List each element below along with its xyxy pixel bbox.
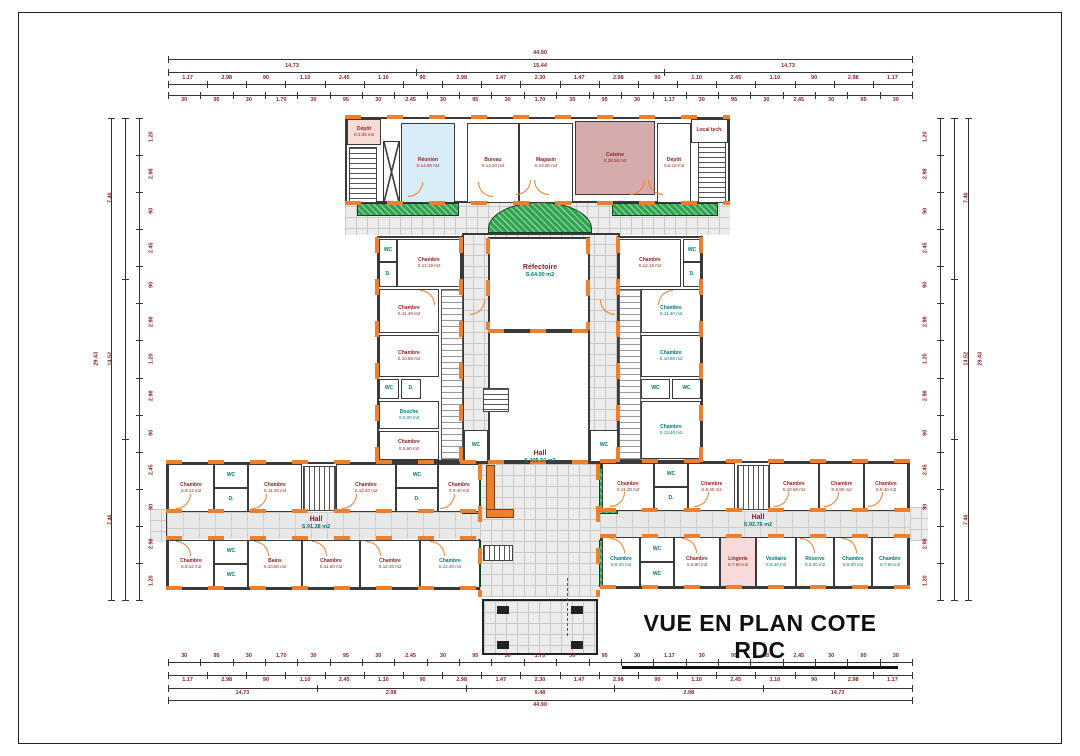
room-label: ChambreS.9.12 m2 xyxy=(180,483,202,494)
dimension-value: 1.10 xyxy=(285,76,324,82)
dimension-value: 1.20 xyxy=(149,349,155,369)
dimension-value: 1.20 xyxy=(923,571,929,591)
room-label: D. xyxy=(690,272,695,278)
dimension-value: 2.98 xyxy=(923,386,929,406)
dimension-value: 1.10 xyxy=(677,678,716,684)
dimension-value: 90 xyxy=(923,497,929,517)
dimension-tick xyxy=(416,69,417,76)
room-label: ChambreS.9.40 m2 xyxy=(875,482,897,493)
wall-accent xyxy=(166,536,480,540)
dimension-tick xyxy=(937,452,944,453)
room-label: ChambreS.10.80 m2 xyxy=(397,351,420,362)
dimension-value: 95 xyxy=(718,98,750,104)
room-label: WC xyxy=(653,572,661,578)
dimension-tick xyxy=(937,489,944,490)
wall-accent xyxy=(459,237,463,462)
dimension-value: 2.98 xyxy=(599,76,638,82)
dimension-value: 1.20 xyxy=(149,571,155,591)
dimension-value: 2.98 xyxy=(149,386,155,406)
dimension-value: 2.45 xyxy=(149,460,155,480)
dimension-tick xyxy=(937,378,944,379)
porch-post xyxy=(571,641,583,649)
dimension-value: 90 xyxy=(149,200,155,220)
room-label: MagasinS.13.60 m2 xyxy=(534,158,557,169)
room-wc: WC xyxy=(214,464,248,488)
dimension-value: 2.98 xyxy=(923,312,929,332)
dimension-tick xyxy=(912,672,913,679)
dimension-value: 14.73 xyxy=(168,691,317,697)
room-chambre: ChambreS.10.80 m2 xyxy=(379,335,439,377)
dimension-tick xyxy=(394,659,395,666)
dimension-value: 30 xyxy=(556,98,588,104)
dimension-tick xyxy=(364,81,365,88)
dimension-tick xyxy=(481,81,482,88)
area-label-r-fectoire: RéfectoireS.64.00 m2 xyxy=(523,264,557,279)
room-label: ChambreS.9.60 m2 xyxy=(398,440,420,451)
room-wc: WC xyxy=(379,239,397,262)
room-label: DoucheS.5.20 m2 xyxy=(399,410,420,421)
dimension-value: 95 xyxy=(330,654,362,660)
dimension-value: 30 xyxy=(168,98,200,104)
room-chambre: ChambreS.11.60 m2 xyxy=(302,540,360,588)
dimension-value: 2.30 xyxy=(520,678,559,684)
dimension-line xyxy=(168,688,912,689)
dimension-tick xyxy=(912,697,913,704)
dimension-tick xyxy=(136,192,143,193)
wall-accent xyxy=(600,585,910,589)
room-wc: WC xyxy=(590,430,618,462)
room-chambre: ChambreS.9.80 m2 xyxy=(674,537,720,587)
area-label-hall: HallS.92.76 m2 xyxy=(744,514,772,529)
dimension-value: 2.98 xyxy=(207,678,246,684)
dimension-value: 95 xyxy=(330,98,362,104)
room-label: ChambreS.12.40 m2 xyxy=(438,559,461,570)
room-label: D. xyxy=(669,496,674,502)
dimension-tick xyxy=(168,56,169,63)
dimension-value: 2.30 xyxy=(520,76,559,82)
room-label: ChambreS.11.20 m2 xyxy=(264,483,287,494)
dimension-line xyxy=(954,118,955,600)
dimension-value: 1.20 xyxy=(923,349,929,369)
room-label: D. xyxy=(386,272,391,278)
room-wc: WC xyxy=(654,463,688,487)
dimension-tick xyxy=(136,563,143,564)
dimension-value: 2.45 xyxy=(923,460,929,480)
room-label: ChambreS.10.60 m2 xyxy=(782,482,805,493)
dimension-tick xyxy=(136,303,143,304)
dimension-value: 1.10 xyxy=(755,678,794,684)
dimension-value: 2.98 xyxy=(599,678,638,684)
room-label: WC xyxy=(682,386,690,392)
room-label: VestiaireS.8.40 m2 xyxy=(766,557,787,568)
dimension-tick xyxy=(912,685,913,692)
area-label-hall: HallS.91.38 m2 xyxy=(302,516,330,531)
dimension-value: 7.46 xyxy=(108,188,114,208)
room-label: ChambreS.9.40 m2 xyxy=(701,482,723,493)
dimension-value: 90 xyxy=(795,76,834,82)
entrance-wall xyxy=(486,509,514,518)
room-chambre: ChambreS.12.19 m2 xyxy=(397,239,461,287)
room-chambre: ChambreS.10.80 m2 xyxy=(641,335,701,377)
dimension-line xyxy=(139,118,140,600)
room-wc: WC xyxy=(396,464,438,488)
dimension-tick xyxy=(524,659,525,666)
dimension-value: 30 xyxy=(750,98,782,104)
room-label: WC xyxy=(227,573,235,579)
dimension-tick xyxy=(136,340,143,341)
wall-accent xyxy=(600,459,910,463)
dimension-tick xyxy=(122,118,129,119)
room-label: WC xyxy=(688,248,696,254)
dimension-tick xyxy=(330,659,331,666)
dimension-value: 2.45 xyxy=(325,678,364,684)
dimension-tick xyxy=(136,266,143,267)
dimension-value: 14.73 xyxy=(664,64,912,70)
room-label: WC xyxy=(227,549,235,555)
dimension-value: 29.43 xyxy=(978,349,984,369)
wall-accent xyxy=(166,586,480,590)
dimension-tick xyxy=(459,659,460,666)
dimension-tick xyxy=(136,155,143,156)
dimension-line xyxy=(168,59,912,60)
room-label: ChambreS.11.40 m2 xyxy=(398,306,421,317)
room-label: ChambreS.9.40 m2 xyxy=(448,483,470,494)
dimension-value: 30 xyxy=(233,98,265,104)
dimension-tick xyxy=(951,600,958,601)
dimension-tick xyxy=(912,69,913,76)
dimension-tick xyxy=(136,526,143,527)
dimension-value: 44.90 xyxy=(168,51,912,57)
dimension-value: 30 xyxy=(362,654,394,660)
room-label: LingerieS.7.60 m2 xyxy=(728,557,749,568)
dimension-tick xyxy=(265,659,266,666)
dimension-value: 7.46 xyxy=(964,509,970,529)
room-label: WC xyxy=(600,443,608,449)
room-lingerie: LingerieS.7.60 m2 xyxy=(720,537,756,587)
room-label: WC xyxy=(385,386,393,392)
dimension-value: 90 xyxy=(403,76,442,82)
dimension-tick xyxy=(297,659,298,666)
dimension-value: 95 xyxy=(200,98,232,104)
dimension-value: 14.73 xyxy=(763,691,912,697)
dimension-tick xyxy=(325,81,326,88)
stair-north-left xyxy=(349,147,377,203)
dimension-value: 30 xyxy=(621,98,653,104)
dimension-tick xyxy=(912,56,913,63)
dimension-value: 30 xyxy=(491,654,523,660)
wall-accent xyxy=(166,509,480,513)
dimension-value: 30 xyxy=(297,98,329,104)
dimension-value: 90 xyxy=(923,200,929,220)
wall-accent xyxy=(600,534,910,538)
dimension-value: 2.45 xyxy=(394,654,426,660)
room-wc: WC xyxy=(379,379,399,399)
dimension-value: 2.98 xyxy=(834,678,873,684)
room-label: WC xyxy=(227,473,235,479)
dimension-value: 2.98 xyxy=(149,312,155,332)
room-chambre: ChambreS.7.60 m2 xyxy=(872,537,908,587)
dimension-value: 2.98 xyxy=(614,691,763,697)
wall-accent xyxy=(586,238,590,330)
dimension-tick xyxy=(937,303,944,304)
stair-right-wing xyxy=(737,465,770,510)
room-vestiaire: VestiaireS.8.40 m2 xyxy=(756,537,796,587)
dimension-line xyxy=(168,84,912,85)
dimension-value: 2.45 xyxy=(149,238,155,258)
room-d-p-t: DépôtS.3.05 m2 xyxy=(347,119,381,145)
dimension-tick xyxy=(560,81,561,88)
wall-accent xyxy=(486,238,490,330)
room-label: ChambreS.12.19 m2 xyxy=(417,258,440,269)
dimension-value: 90 xyxy=(923,423,929,443)
dimension-value: 2.98 xyxy=(442,678,481,684)
room-label: CuisineS.28.56 m2 xyxy=(603,153,626,164)
room-douche: DoucheS.5.20 m2 xyxy=(379,401,439,429)
duct-shaft xyxy=(383,141,400,203)
room-label: D. xyxy=(409,386,414,392)
room-wc: WC xyxy=(464,430,488,462)
dimension-value: 95 xyxy=(589,654,621,660)
dimension-tick xyxy=(965,600,972,601)
dimension-value: 30 xyxy=(491,98,523,104)
dimension-tick xyxy=(427,659,428,666)
dimension-tick xyxy=(403,81,404,88)
dimension-value: 30 xyxy=(880,98,912,104)
dimension-tick xyxy=(136,378,143,379)
room-label: ChambreS.11.40 m2 xyxy=(660,306,683,317)
room-local-tech: Local tech. xyxy=(691,119,728,143)
dimension-value: 1.10 xyxy=(364,76,403,82)
dimension-value: 2.98 xyxy=(149,163,155,183)
dimension-value: 2.98 xyxy=(317,691,466,697)
dimension-tick xyxy=(442,81,443,88)
dimension-value: 1.10 xyxy=(285,678,324,684)
dimension-tick xyxy=(599,81,600,88)
dimension-tick xyxy=(716,81,717,88)
room-label: WC xyxy=(653,547,661,553)
dimension-tick xyxy=(233,659,234,666)
dimension-value: 14.52 xyxy=(964,349,970,369)
room-label: BainsS.10.80 m2 xyxy=(263,559,286,570)
dimension-tick xyxy=(136,452,143,453)
stair-left-wing xyxy=(303,466,336,511)
porch-post xyxy=(497,641,509,649)
dimension-line xyxy=(168,72,912,73)
dimension-tick xyxy=(937,118,944,119)
dimension-value: 14.52 xyxy=(108,349,114,369)
dimension-tick xyxy=(136,600,143,601)
dimension-tick xyxy=(246,81,247,88)
dimension-value: 1.17 xyxy=(168,678,207,684)
dimension-tick xyxy=(937,600,944,601)
dimension-tick xyxy=(937,155,944,156)
dimension-tick xyxy=(168,659,169,666)
axis-centerline xyxy=(567,578,568,636)
stair-court-west xyxy=(483,388,509,412)
dimension-tick xyxy=(520,81,521,88)
room-label: WC xyxy=(384,248,392,254)
dimension-value: 2.45 xyxy=(923,238,929,258)
dimension-tick xyxy=(556,659,557,666)
dimension-tick xyxy=(755,81,756,88)
dimension-value: 30 xyxy=(815,98,847,104)
dimension-tick xyxy=(937,266,944,267)
room-wc: WC xyxy=(214,540,248,564)
dimension-value: 2.45 xyxy=(783,98,815,104)
room-label: WC xyxy=(667,472,675,478)
room-label: ChambreS.12.40 m2 xyxy=(354,483,377,494)
dimension-value: 1.47 xyxy=(560,76,599,82)
wall-accent xyxy=(375,237,379,462)
dimension-value: 15.44 xyxy=(416,64,664,70)
wall-accent xyxy=(699,237,703,462)
dimension-value: 90 xyxy=(923,275,929,295)
dimension-value: 90 xyxy=(638,678,677,684)
room-wc: WC xyxy=(640,562,674,587)
junction xyxy=(480,464,600,597)
dimension-value: 30 xyxy=(297,654,329,660)
stair-court-south xyxy=(483,545,513,561)
dimension-tick xyxy=(912,659,913,666)
dimension-value: 1.17 xyxy=(873,76,912,82)
room-label: ChambreS.7.60 m2 xyxy=(879,557,901,568)
dimension-value: 1.70 xyxy=(524,98,556,104)
wall-accent xyxy=(478,464,482,597)
dimension-value: 2.45 xyxy=(716,678,755,684)
dimension-value: 1.17 xyxy=(873,678,912,684)
dimension-tick xyxy=(937,563,944,564)
dimension-tick xyxy=(362,659,363,666)
room-chambre: ChambreS.12.19 m2 xyxy=(619,239,681,287)
dimension-value: 30 xyxy=(556,654,588,660)
dimension-value: 95 xyxy=(459,654,491,660)
dimension-value: 2.45 xyxy=(716,76,755,82)
dimension-value: 9.48 xyxy=(466,691,615,697)
dimension-tick xyxy=(951,279,958,280)
dimension-value: 1.17 xyxy=(168,76,207,82)
wall-accent xyxy=(596,464,600,597)
dimension-tick xyxy=(122,600,129,601)
dimension-tick xyxy=(108,118,115,119)
wall-accent xyxy=(345,201,730,205)
dimension-value: 1.20 xyxy=(149,126,155,146)
dimension-value: 1.70 xyxy=(265,98,297,104)
dimension-tick xyxy=(937,229,944,230)
dimension-value: 30 xyxy=(362,98,394,104)
dimension-value: 2.98 xyxy=(149,534,155,554)
dimension-tick xyxy=(912,81,913,88)
dimension-value: 90 xyxy=(149,275,155,295)
room-label: WC xyxy=(413,473,421,479)
room-label: RéserveS.8.00 m2 xyxy=(805,557,826,568)
dimension-value: 1.47 xyxy=(481,76,520,82)
dimension-value: 1.10 xyxy=(364,678,403,684)
dimension-value: 2.98 xyxy=(923,534,929,554)
dimension-tick xyxy=(965,118,972,119)
dimension-value: 90 xyxy=(246,678,285,684)
room-wc: WC xyxy=(641,379,670,399)
dimension-value: 95 xyxy=(589,98,621,104)
room-chambre: ChambreS.12.40 m2 xyxy=(420,540,480,588)
room-label: ChambreS.9.80 m2 xyxy=(831,482,853,493)
dimension-line xyxy=(168,700,912,701)
wall-accent xyxy=(166,460,480,464)
room-label: ChambreS.9.12 m2 xyxy=(180,559,202,570)
dimension-tick xyxy=(200,659,201,666)
dimension-tick xyxy=(168,69,169,76)
page-title: VUE EN PLAN COTE RDC xyxy=(622,610,898,669)
dimension-line xyxy=(940,118,941,600)
dimension-value: 1.70 xyxy=(524,654,556,660)
room-label: ChambreS.9.80 m2 xyxy=(686,557,708,568)
dimension-value: 30 xyxy=(427,98,459,104)
dimension-tick xyxy=(122,439,129,440)
room-d: D. xyxy=(401,379,421,399)
room-label: ChambreS.12.19 m2 xyxy=(638,258,661,269)
dimension-tick xyxy=(108,600,115,601)
stair-north-right xyxy=(698,141,726,203)
dimension-tick xyxy=(937,192,944,193)
dimension-value: 29.43 xyxy=(94,349,100,369)
dimension-tick xyxy=(122,279,129,280)
dimension-tick xyxy=(937,526,944,527)
room-label: ChambreS.12.40 m2 xyxy=(378,559,401,570)
dimension-value: 30 xyxy=(168,654,200,660)
dimension-line xyxy=(168,95,912,96)
dimension-tick xyxy=(873,81,874,88)
room-label: ChambreS.11.20 m2 xyxy=(617,482,640,493)
dimension-tick xyxy=(937,415,944,416)
dimension-value: 90 xyxy=(795,678,834,684)
room-chambre: ChambreS.9.60 m2 xyxy=(379,431,439,460)
dimension-value: 2.98 xyxy=(207,76,246,82)
room-label: DépôtS.3.05 m2 xyxy=(354,127,375,138)
dimension-tick xyxy=(136,118,143,119)
dimension-value: 90 xyxy=(149,497,155,517)
room-wc: WC xyxy=(214,564,248,588)
dimension-tick xyxy=(937,340,944,341)
room-label: ChambreS.10.80 m2 xyxy=(659,351,682,362)
room-label: ChambreS.11.60 m2 xyxy=(320,559,343,570)
wall-accent xyxy=(600,508,910,512)
wall-accent xyxy=(345,115,730,119)
dimension-value: 2.98 xyxy=(442,76,481,82)
dimension-value: 90 xyxy=(638,76,677,82)
wall-accent xyxy=(488,329,590,333)
dimension-line xyxy=(168,675,912,676)
dimension-value: 30 xyxy=(686,98,718,104)
wall-accent xyxy=(616,237,620,462)
room-wc: WC xyxy=(640,537,674,562)
room-label: ChambreS.8.00 m2 xyxy=(842,557,864,568)
dimension-value: 30 xyxy=(427,654,459,660)
dimension-line xyxy=(125,118,126,600)
dimension-tick xyxy=(589,659,590,666)
room-d: D. xyxy=(379,262,397,287)
dimension-tick xyxy=(664,69,665,76)
dimension-tick xyxy=(951,439,958,440)
dimension-tick xyxy=(795,81,796,88)
dimension-value: 1.70 xyxy=(265,654,297,660)
room-label: RéunionS.14.80 m2 xyxy=(416,158,439,169)
dimension-tick xyxy=(912,92,913,99)
dimension-tick xyxy=(136,489,143,490)
dimension-value: 1.10 xyxy=(677,76,716,82)
dimension-value: 2.45 xyxy=(325,76,364,82)
dimension-value: 2.45 xyxy=(394,98,426,104)
dimension-value: 1.47 xyxy=(560,678,599,684)
room-label: D. xyxy=(229,497,234,503)
